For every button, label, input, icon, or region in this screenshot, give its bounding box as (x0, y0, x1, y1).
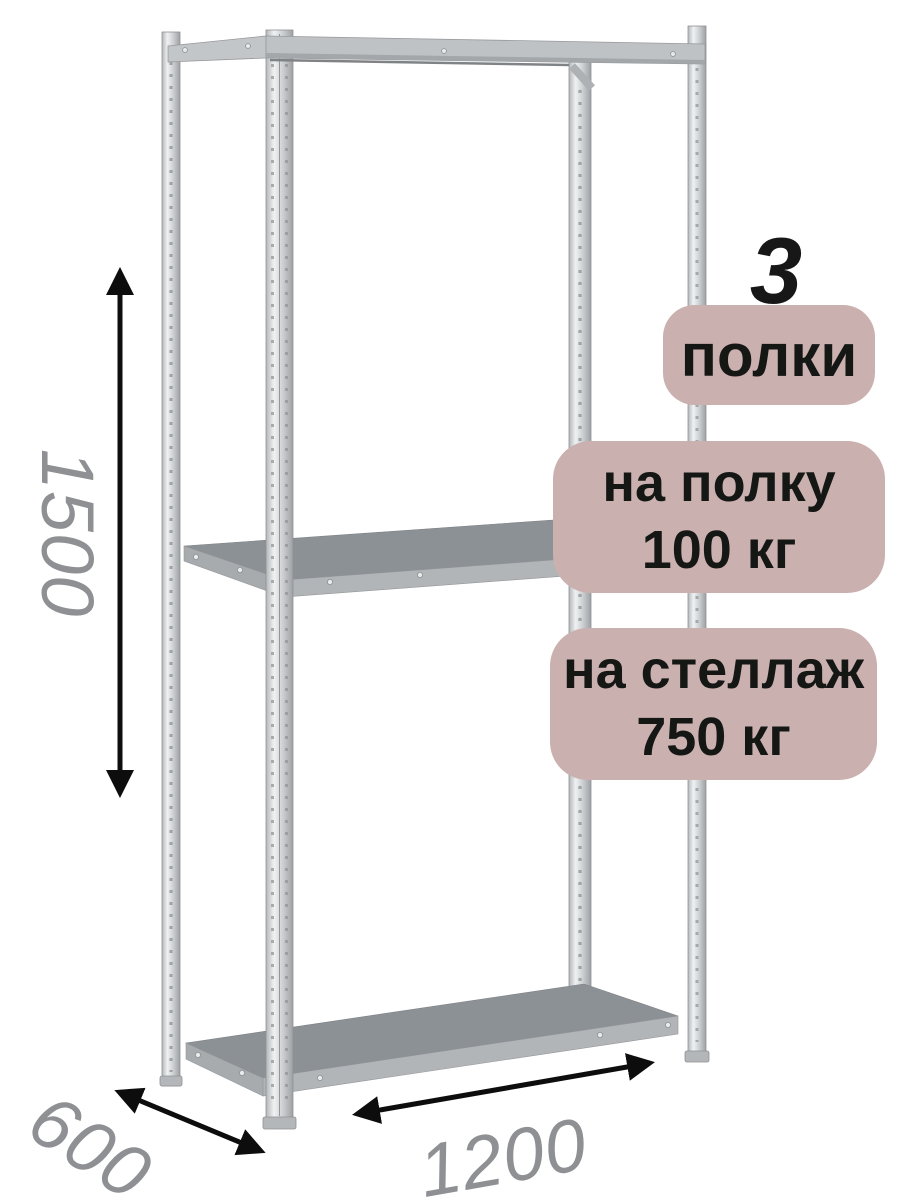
rack-illustration (0, 0, 900, 1200)
product-image: 1500 600 1200 3 полки на полку 100 кг на… (0, 0, 900, 1200)
front-left-post (263, 30, 296, 1129)
dimension-height-label: 1500 (22, 373, 112, 693)
bottom-shelf (186, 984, 678, 1096)
badge-per-shelf-line1: на полку (553, 450, 885, 517)
top-shelf (168, 36, 705, 65)
badge-shelf-count-label: полки (663, 321, 875, 390)
badge-shelf-count: полки (663, 305, 875, 405)
badge-per-rack-line2: 750 кг (550, 704, 877, 771)
badge-per-shelf-load: на полку 100 кг (553, 441, 885, 593)
badge-per-rack-line1: на стеллаж (550, 637, 877, 704)
back-left-post (160, 32, 182, 1086)
shelf-count-number: 3 (716, 224, 836, 318)
badge-per-rack-load: на стеллаж 750 кг (550, 628, 877, 780)
badge-per-shelf-line2: 100 кг (553, 517, 885, 584)
